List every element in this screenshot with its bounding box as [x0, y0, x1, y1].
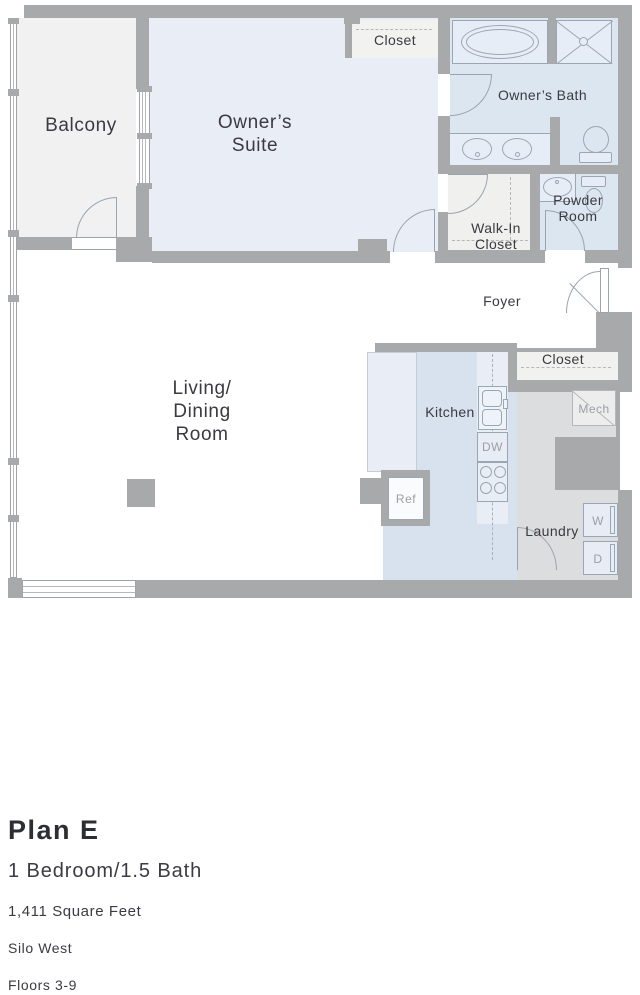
label-laundry: Laundry [512, 523, 592, 539]
dishwasher-label: DW [477, 440, 508, 454]
wall-balcony-bottom [10, 237, 72, 250]
floor-plan-page: DW Ref Mech W D Balcony Owner’s Suite Cl… [0, 0, 640, 995]
wall-balcony-suite-lower [136, 186, 149, 237]
wall-powder-bottom-right [585, 250, 632, 263]
plan-square-feet: 1,411 Square Feet [8, 903, 141, 920]
wall-owners-closet-stub [344, 14, 360, 24]
plan-floors: Floors 3-9 [8, 977, 77, 993]
wall-suite-stub [358, 239, 387, 251]
cooktop-burner [494, 482, 506, 494]
mech-label: Mech [572, 402, 616, 416]
label-powder-room: Powder Room [538, 192, 618, 224]
cooktop-burner [480, 482, 492, 494]
wall-ref-stub [360, 478, 383, 504]
label-living-line3: Room [122, 423, 282, 446]
wall-bottom [142, 580, 632, 598]
wall-laundry-chase [555, 437, 618, 490]
closet-rod [521, 367, 611, 368]
window-mullion [8, 515, 19, 522]
plan-building: Silo West [8, 940, 72, 956]
cooktop-burner [480, 466, 492, 478]
dryer-label: D [583, 552, 613, 566]
label-coat-closet: Closet [520, 351, 606, 367]
window-mullion [8, 230, 19, 237]
label-walk-in-line2: Closet [456, 236, 536, 252]
wall-entry-chunk [596, 312, 618, 352]
kitchen-faucet [503, 399, 508, 409]
wall-owners-closet-left [345, 18, 352, 58]
window-mullion [137, 183, 152, 189]
cooktop-burner [494, 466, 506, 478]
window-mullion [8, 18, 19, 24]
closet-rod [356, 29, 432, 30]
wall-tub-shower-divider [548, 18, 556, 64]
label-walk-in-line1: Walk-In [456, 220, 536, 236]
window-mullion [8, 458, 19, 465]
door-entry-slot [600, 268, 609, 313]
wall-bath-bottom [438, 165, 632, 174]
label-living-line2: Dining [122, 400, 282, 423]
bathtub-oval-inner [466, 29, 534, 55]
toilet-tank [581, 176, 606, 187]
label-powder-line1: Powder [538, 192, 618, 208]
shower-drain [579, 37, 588, 46]
label-foyer: Foyer [462, 293, 542, 309]
wall-balcony-suite-upper [136, 18, 149, 89]
label-balcony: Balcony [21, 114, 141, 137]
label-owners-suite-line2: Suite [185, 134, 325, 157]
sink-drain [475, 152, 480, 157]
wall-right-mid [618, 312, 632, 385]
window-mullion [8, 295, 19, 302]
label-owners-bath: Owner’s Bath [480, 87, 605, 103]
plan-title: Plan E [8, 815, 100, 846]
label-powder-line2: Room [538, 208, 618, 224]
wall-right-upper [618, 18, 632, 268]
sink-drain [515, 152, 520, 157]
refrigerator-label: Ref [388, 492, 424, 506]
balcony-door-threshold [72, 237, 116, 250]
label-living-line1: Living/ [122, 377, 282, 400]
toilet-bowl [583, 126, 609, 153]
wall-top [24, 5, 632, 18]
door-entry-arc [566, 271, 600, 313]
wall-suite-right-1 [438, 18, 450, 74]
window-bottom [22, 580, 136, 598]
wall-balcony-corner [116, 237, 152, 262]
window-mullion [137, 86, 152, 92]
wall-kitchen-top [375, 343, 517, 352]
wall-suite-bottom [152, 251, 390, 263]
label-living-dining: Living/ Dining Room [122, 377, 282, 446]
label-owners-suite: Owner’s Suite [185, 111, 325, 157]
structural-column [127, 479, 155, 507]
wall-suite-right-3 [438, 212, 448, 263]
toilet-tank [579, 152, 612, 163]
plan-bed-bath: 1 Bedroom/1.5 Bath [8, 860, 202, 883]
label-kitchen: Kitchen [410, 404, 490, 420]
sink-drain [555, 180, 559, 184]
window-end-post [136, 580, 142, 598]
window-mullion [8, 89, 19, 96]
label-walk-in-closet: Walk-In Closet [456, 220, 536, 252]
label-owners-closet: Closet [362, 32, 428, 48]
label-owners-suite-line1: Owner’s [185, 111, 325, 134]
wall-bath-stub [550, 117, 560, 165]
wall-corner-post [8, 578, 22, 598]
